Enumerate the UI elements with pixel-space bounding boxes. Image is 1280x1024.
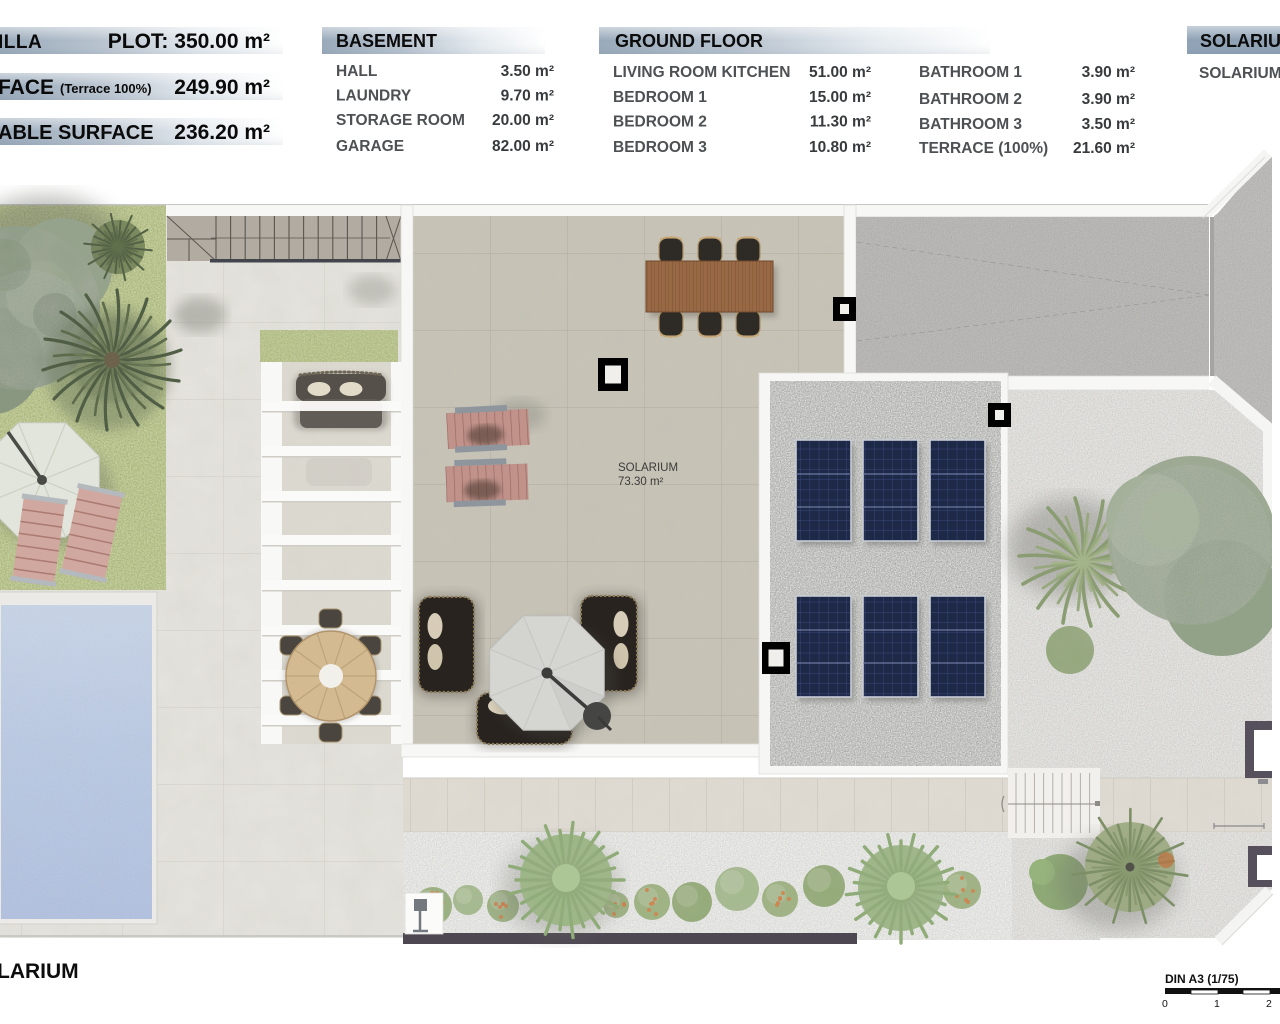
svg-text:BATHROOM 3: BATHROOM 3	[919, 116, 1022, 133]
svg-text:3.50 m²: 3.50 m²	[1082, 116, 1135, 133]
svg-text:2: 2	[1266, 998, 1272, 1010]
svg-text:20.00 m²: 20.00 m²	[492, 112, 554, 129]
svg-text:LAUNDRY: LAUNDRY	[336, 88, 412, 105]
svg-text:PLOT: 350.00 m²: PLOT: 350.00 m²	[108, 30, 270, 53]
svg-text:15.00 m²: 15.00 m²	[809, 89, 871, 106]
svg-text:10.80 m²: 10.80 m²	[809, 139, 871, 156]
svg-text:11.30 m²: 11.30 m²	[810, 114, 871, 131]
svg-text:ILLA: ILLA	[0, 32, 42, 53]
svg-text:SOLARIUM: SOLARIUM	[618, 462, 678, 474]
svg-text:82.00 m²: 82.00 m²	[492, 138, 554, 155]
svg-text:BATHROOM 1: BATHROOM 1	[919, 64, 1022, 81]
svg-text:GROUND FLOOR: GROUND FLOOR	[615, 31, 763, 51]
svg-text:BEDROOM 3: BEDROOM 3	[613, 139, 707, 156]
svg-text:236.20 m²: 236.20 m²	[174, 121, 270, 144]
svg-text:LIVING ROOM KITCHEN: LIVING ROOM KITCHEN	[613, 64, 790, 81]
svg-text:GARAGE: GARAGE	[336, 138, 404, 155]
svg-text:BASEMENT: BASEMENT	[336, 31, 437, 51]
svg-text:249.90 m²: 249.90 m²	[174, 76, 270, 99]
svg-text:ABLE SURFACE: ABLE SURFACE	[0, 122, 154, 144]
svg-text:3.90 m²: 3.90 m²	[1082, 64, 1135, 81]
svg-text:73.30 m²: 73.30 m²	[618, 476, 664, 488]
svg-text:3.90 m²: 3.90 m²	[1082, 91, 1135, 108]
svg-text:LARIUM: LARIUM	[0, 960, 79, 983]
svg-text:SOLARIUM (: SOLARIUM (	[1199, 65, 1280, 82]
svg-text:DIN A3 (1/75): DIN A3 (1/75)	[1165, 972, 1239, 986]
svg-text:0: 0	[1162, 998, 1168, 1010]
svg-text:BATHROOM 2: BATHROOM 2	[919, 91, 1022, 108]
svg-text:51.00 m²: 51.00 m²	[809, 64, 871, 81]
svg-text:9.70 m²: 9.70 m²	[501, 88, 554, 105]
svg-text:3.50 m²: 3.50 m²	[501, 63, 554, 80]
svg-text:SOLARIUM: SOLARIUM	[1200, 31, 1280, 51]
svg-text:1: 1	[1214, 998, 1220, 1010]
svg-text:TERRACE (100%): TERRACE (100%)	[919, 140, 1048, 157]
svg-text:BEDROOM 2: BEDROOM 2	[613, 114, 707, 131]
svg-text:HALL: HALL	[336, 63, 377, 80]
svg-text:STORAGE ROOM: STORAGE ROOM	[336, 112, 465, 129]
svg-text:(Terrace 100%): (Terrace 100%)	[60, 81, 152, 96]
svg-text:BEDROOM 1: BEDROOM 1	[613, 89, 707, 106]
svg-text:FACE: FACE	[0, 76, 54, 99]
svg-text:21.60 m²: 21.60 m²	[1073, 140, 1135, 157]
